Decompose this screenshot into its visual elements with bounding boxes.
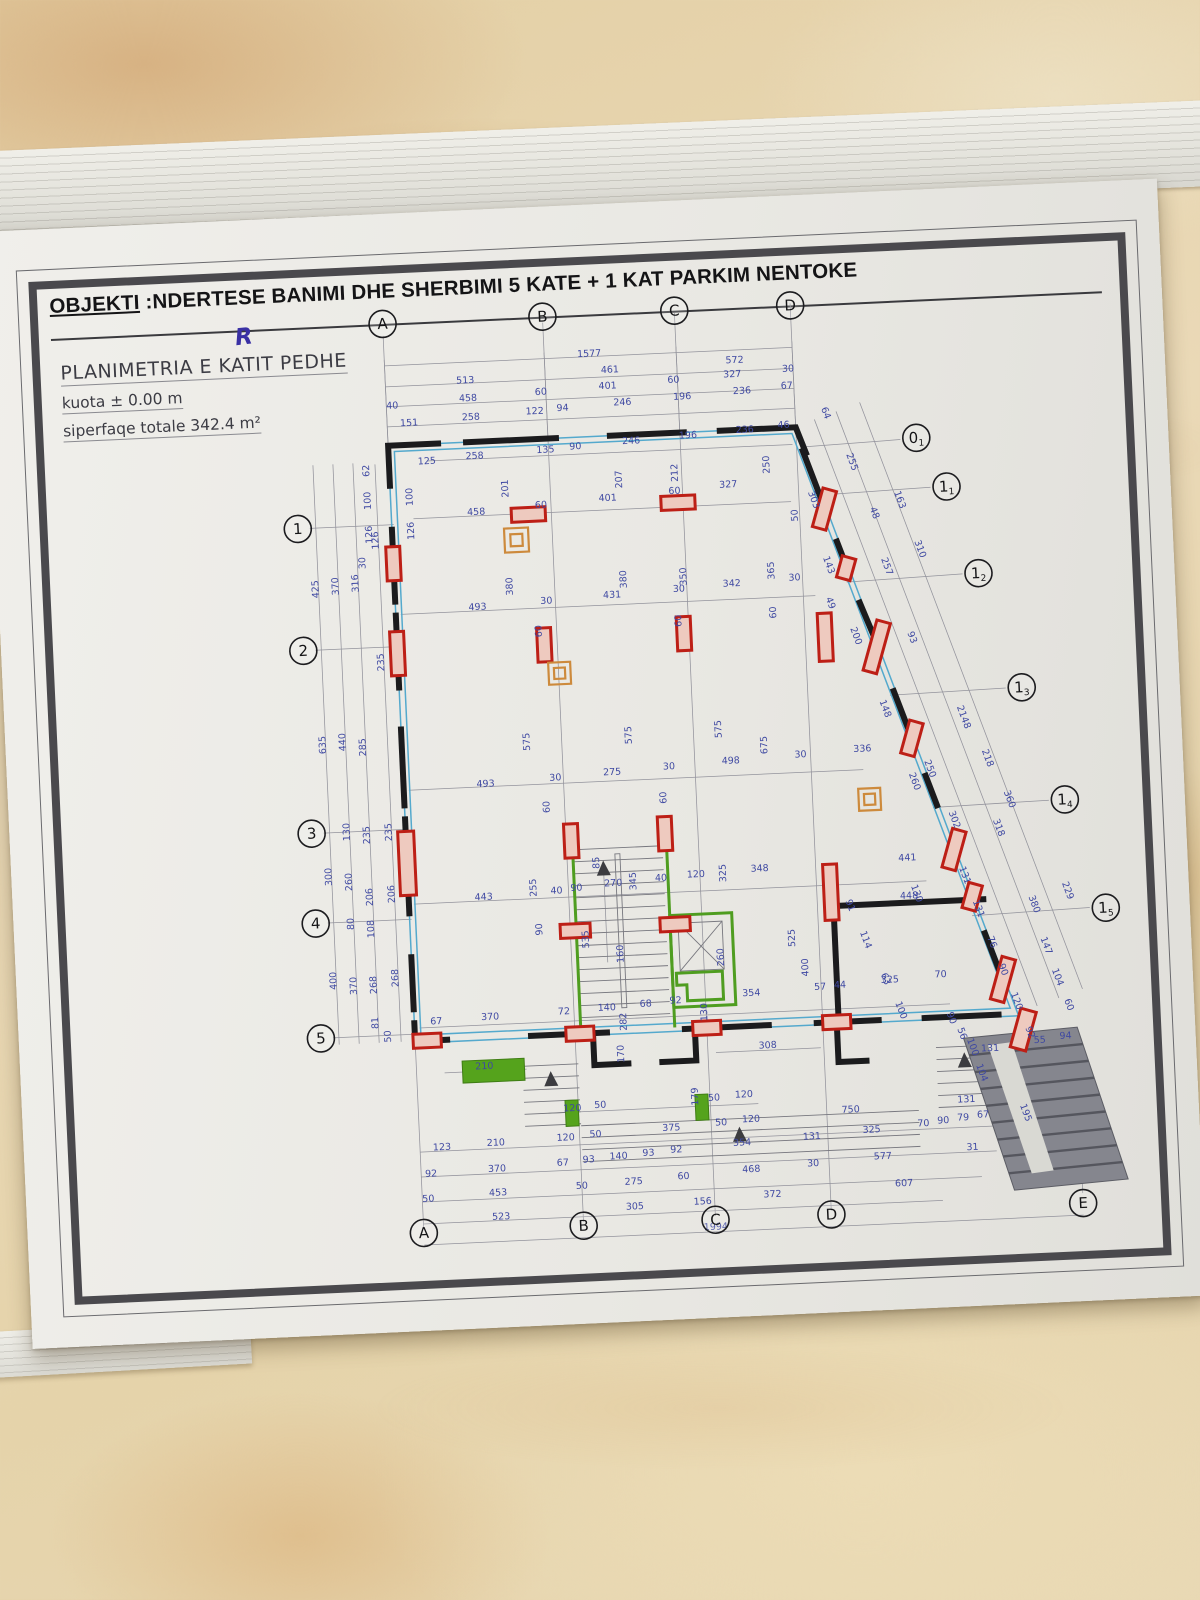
dim-label: 246 xyxy=(622,435,641,447)
dim-label: 458 xyxy=(459,393,478,405)
dim-label: 380 xyxy=(618,570,630,589)
axis-left-label: 1 xyxy=(293,520,303,538)
dim-label: 493 xyxy=(476,778,495,790)
dim-label: 30 xyxy=(549,772,562,784)
dim-label: 60 xyxy=(533,625,545,638)
dim-label: 318 xyxy=(990,817,1007,838)
dim-label: 60 xyxy=(541,801,553,814)
dim-label: 282 xyxy=(618,1012,630,1031)
dim-label: 305 xyxy=(626,1201,645,1213)
dim-label: 147 xyxy=(1038,935,1055,956)
dim-label: 31 xyxy=(966,1142,979,1154)
dim-label: 130 xyxy=(341,823,353,842)
dim-label: 468 xyxy=(742,1164,761,1176)
dim-label: 285 xyxy=(357,738,369,757)
dim-label: 218 xyxy=(979,748,996,769)
dim-label: 90 xyxy=(534,923,546,936)
dim-label: 300 xyxy=(323,868,335,887)
stair-tread xyxy=(576,918,666,922)
dim-label: 93 xyxy=(582,1154,595,1166)
dim-line xyxy=(310,525,394,529)
dim-label: 92 xyxy=(670,1144,683,1156)
dim-label: 607 xyxy=(895,1178,914,1190)
dim-label: 354 xyxy=(733,1137,752,1149)
dim-label: 443 xyxy=(474,892,493,904)
dim-label: 270 xyxy=(604,878,623,890)
dim-label: 212 xyxy=(669,463,681,482)
dim-label: 92 xyxy=(425,1168,438,1180)
dim-label: 30 xyxy=(782,363,795,375)
dim-label: 316 xyxy=(350,574,362,593)
dim-label: 93 xyxy=(904,630,919,645)
dim-label: 70 xyxy=(934,969,947,981)
dim-line xyxy=(933,800,1049,807)
axis-bottom-label: A xyxy=(418,1224,430,1242)
dim-label: 30 xyxy=(673,583,686,595)
dim-label: 260 xyxy=(906,771,923,792)
dim-label: 114 xyxy=(857,929,874,950)
column xyxy=(566,1026,595,1041)
dim-label: 135 xyxy=(536,444,555,456)
dim-label: 93 xyxy=(642,1147,655,1159)
dim-label: 120 xyxy=(687,869,706,881)
dim-label: 30 xyxy=(788,572,801,584)
dim-label: 400 xyxy=(800,958,812,977)
dim-label: 160 xyxy=(615,944,627,963)
dim-label: 30 xyxy=(663,761,676,773)
dim-line xyxy=(814,411,1037,1015)
stair-tread xyxy=(575,894,665,898)
column xyxy=(398,831,417,896)
dim-label: 453 xyxy=(489,1187,508,1199)
dim-label: 327 xyxy=(719,479,738,491)
dim-label: 30 xyxy=(807,1158,820,1170)
dim-label: 131 xyxy=(956,865,973,886)
axis-top-label: A xyxy=(377,315,389,333)
dim-label: 70 xyxy=(917,1118,930,1130)
axis-left-label: 3 xyxy=(306,824,316,842)
dim-label: 81 xyxy=(370,1017,382,1030)
dim-label: 258 xyxy=(462,412,481,424)
dim-label: 50 xyxy=(715,1117,728,1129)
dim-label: 100 xyxy=(362,491,374,510)
dim-label: 513 xyxy=(456,375,475,387)
stair-tread xyxy=(580,1002,670,1006)
dim-label: 40 xyxy=(550,885,563,897)
dim-label: 635 xyxy=(317,736,329,755)
dim-label: 255 xyxy=(528,878,540,897)
dim-label: 68 xyxy=(639,998,652,1010)
dim-label: 431 xyxy=(603,589,622,601)
dim-label: 94 xyxy=(1059,1030,1072,1042)
dim-label: 90 xyxy=(937,1115,950,1127)
stair-tread xyxy=(574,870,664,874)
shaft-marker-inner xyxy=(864,794,875,805)
wall-segment xyxy=(411,957,413,1009)
dim-label: 60 xyxy=(668,486,681,498)
dim-label: 575 xyxy=(623,726,635,745)
dim-label: 40 xyxy=(386,400,399,412)
axis-bottom-label: C xyxy=(710,1211,721,1229)
dim-label: 523 xyxy=(492,1211,511,1223)
dim-label: 50 xyxy=(708,1092,721,1104)
dim-label: 200 xyxy=(847,626,864,647)
column xyxy=(390,631,406,676)
dim-label: 535 xyxy=(580,930,592,949)
stair-tread xyxy=(579,990,669,994)
axis-top-label: D xyxy=(784,296,796,315)
dim-label: 206 xyxy=(364,888,376,907)
dim-label: 60 xyxy=(535,500,548,512)
title-object-word: OBJEKTI xyxy=(49,291,140,318)
dim-label: 380 xyxy=(504,577,516,596)
dim-label: 79 xyxy=(957,1112,970,1124)
dim-label: 151 xyxy=(400,417,419,429)
dim-label: 100 xyxy=(404,488,416,507)
dim-label: 170 xyxy=(616,1045,628,1064)
dim-label: 48 xyxy=(867,505,882,520)
dim-line xyxy=(333,464,359,1043)
dim-label: 572 xyxy=(725,355,744,367)
dim-label: 345 xyxy=(628,872,640,891)
dim-label: 525 xyxy=(786,929,798,948)
plan-elevation: kuota ± 0.00 m xyxy=(61,389,183,414)
dim-label: 64 xyxy=(818,406,833,421)
dim-label: 370 xyxy=(348,977,360,996)
dim-label: 196 xyxy=(679,430,698,442)
dim-label: 210 xyxy=(475,1061,494,1073)
dim-label: 30 xyxy=(794,749,807,761)
shaft-marker xyxy=(504,528,529,553)
dim-label: 90 xyxy=(570,882,583,894)
dim-label: 163 xyxy=(891,489,908,510)
dim-label: 360 xyxy=(1001,789,1018,810)
dim-label: 275 xyxy=(624,1176,643,1188)
dim-label: 401 xyxy=(598,492,617,504)
dim-label: 196 xyxy=(673,391,692,403)
axis-left-label: 5 xyxy=(316,1029,326,1047)
floor-plan-drawing: 1577513461572404586040160327301512581229… xyxy=(240,238,1165,1287)
dim-label: 120 xyxy=(742,1114,761,1126)
wall-segment xyxy=(720,427,806,457)
dim-label: 236 xyxy=(735,424,754,436)
dim-label: 60 xyxy=(1061,997,1076,1012)
dim-label: 67 xyxy=(430,1016,443,1028)
dim-label: 207 xyxy=(613,470,625,489)
dim-label: 44 xyxy=(834,980,847,992)
dim-label: 131 xyxy=(803,1131,822,1143)
dim-label: 131 xyxy=(957,1094,976,1106)
entry-step xyxy=(583,1146,921,1161)
stair-tread xyxy=(573,858,663,862)
column xyxy=(693,1020,722,1035)
axis-top-label: C xyxy=(669,301,680,319)
dim-label: 458 xyxy=(467,506,486,518)
dim-label: 425 xyxy=(310,580,322,599)
dim-label: 493 xyxy=(468,602,487,614)
shaft-marker xyxy=(548,662,571,685)
dim-line xyxy=(800,440,900,448)
dim-label: 72 xyxy=(558,1006,571,1018)
dim-label: 148 xyxy=(877,698,894,719)
dim-label: 275 xyxy=(603,767,622,779)
dim-label: 750 xyxy=(841,1104,860,1116)
dim-label: 120 xyxy=(556,1132,575,1144)
dim-label: 50 xyxy=(589,1129,602,1141)
dim-label: 1577 xyxy=(577,348,602,360)
column xyxy=(823,864,840,921)
dim-label: 268 xyxy=(368,976,380,995)
dim-label: 325 xyxy=(862,1124,881,1136)
entry-step xyxy=(523,1088,579,1091)
dim-label: 60 xyxy=(658,791,670,804)
dim-label: 210 xyxy=(487,1137,506,1149)
dim-label: 325 xyxy=(717,864,729,883)
dim-label: 60 xyxy=(667,375,680,387)
dim-label: 62 xyxy=(361,465,373,478)
dim-label: 575 xyxy=(713,720,725,739)
dim-label: 50 xyxy=(383,1030,395,1043)
dim-label: 258 xyxy=(465,450,484,462)
dim-label: 60 xyxy=(768,606,780,619)
dim-label: 49 xyxy=(823,596,838,611)
dim-label: 67 xyxy=(977,1109,990,1121)
dim-label: 131 xyxy=(981,1043,1000,1055)
stair-elevator-wall xyxy=(676,971,723,1001)
shaft-marker-inner xyxy=(554,668,565,679)
column xyxy=(942,828,966,870)
wall-segment xyxy=(466,438,556,442)
dim-label: 67 xyxy=(557,1157,570,1169)
dim-label: 122 xyxy=(525,406,544,418)
dim-label: 246 xyxy=(613,397,632,409)
dim-label: 440 xyxy=(337,733,349,752)
dim-label: 327 xyxy=(723,369,742,381)
dim-label: 50 xyxy=(789,509,801,522)
axis-left-label: 2 xyxy=(298,642,308,660)
dim-label: 60 xyxy=(673,614,685,627)
dim-label: 179 xyxy=(690,1087,702,1106)
dim-label: 365 xyxy=(766,561,778,580)
dim-label: 60 xyxy=(535,387,548,399)
wall-segment xyxy=(401,730,404,806)
dim-label: 50 xyxy=(422,1193,435,1205)
dim-label: 120 xyxy=(735,1089,754,1101)
dim-label: 372 xyxy=(763,1189,782,1201)
dim-label: 229 xyxy=(1059,880,1076,901)
shaft-marker-inner xyxy=(510,534,523,547)
dim-label: 46 xyxy=(777,420,790,432)
direction-arrow xyxy=(544,1071,559,1087)
dim-label: 370 xyxy=(481,1011,500,1023)
axis-top-label: B xyxy=(537,307,548,325)
dim-label: 354 xyxy=(742,987,761,999)
dim-line xyxy=(421,1151,996,1177)
photo-of-floor-plan: { "sheet": { "title_word": "OBJEKTI", "t… xyxy=(0,0,1200,1600)
dim-label: 260 xyxy=(343,873,355,892)
dim-label: 91 xyxy=(843,898,858,913)
dim-label: 120 xyxy=(563,1103,582,1115)
dim-label: 67 xyxy=(781,380,794,392)
dim-label: 201 xyxy=(500,479,512,498)
dim-label: 235 xyxy=(383,823,395,842)
dim-label: 126 xyxy=(406,522,418,541)
axis-left-label: 4 xyxy=(311,914,321,932)
dim-label: 336 xyxy=(853,743,872,755)
dim-label: 310 xyxy=(911,539,928,560)
dim-label: 130 xyxy=(699,1003,711,1022)
wall-segment xyxy=(925,1015,999,1018)
dim-label: 156 xyxy=(693,1196,712,1208)
dim-line xyxy=(847,574,963,582)
dim-label: 50 xyxy=(594,1100,607,1112)
dim-label: 250 xyxy=(761,455,773,474)
dim-label: 401 xyxy=(598,380,617,392)
wall-segment xyxy=(661,1031,696,1062)
dim-label: 57 xyxy=(814,981,827,993)
dim-label: 498 xyxy=(721,755,740,767)
column xyxy=(822,1014,851,1029)
dim-label: 92 xyxy=(669,995,682,1007)
dim-label: 104 xyxy=(1049,967,1066,988)
column xyxy=(657,816,673,851)
dim-label: 370 xyxy=(488,1163,507,1175)
dim-label: 577 xyxy=(874,1151,893,1163)
dim-label: 260 xyxy=(715,948,727,967)
dim-label: 302 xyxy=(946,809,963,830)
dim-label: 255 xyxy=(843,452,860,473)
dim-label: 575 xyxy=(521,732,533,751)
dim-line xyxy=(890,688,1006,695)
dim-label: 125 xyxy=(418,456,437,468)
dim-label: 348 xyxy=(750,863,769,875)
dim-label: 85 xyxy=(591,856,603,869)
dim-label: 30 xyxy=(357,557,369,570)
dim-label: 370 xyxy=(330,577,342,596)
stair-tread xyxy=(573,846,663,850)
column xyxy=(386,546,402,581)
dim-label: 236 xyxy=(733,385,752,397)
column xyxy=(661,495,696,511)
dim-label: 90 xyxy=(944,1010,959,1025)
stair-tread xyxy=(575,906,665,910)
dim-label: 675 xyxy=(759,736,771,755)
axis-bottom-label: D xyxy=(825,1205,837,1224)
dim-label: 140 xyxy=(598,1002,617,1014)
dim-line xyxy=(333,1034,417,1038)
dim-label: 143 xyxy=(820,555,837,576)
plan-total-area: siperfaqe totale 342.4 m² xyxy=(63,414,262,443)
dim-label: 375 xyxy=(662,1122,681,1134)
dim-label: 60 xyxy=(677,1171,690,1183)
stair-tread xyxy=(578,966,668,970)
dim-label: 461 xyxy=(601,364,620,376)
dim-label: 100 xyxy=(892,1000,909,1021)
dim-line xyxy=(387,408,795,427)
dim-label: 140 xyxy=(609,1151,628,1163)
dim-label: 50 xyxy=(576,1181,589,1193)
dim-label: 268 xyxy=(390,969,402,988)
dim-label: 235 xyxy=(361,826,373,845)
dim-label: 400 xyxy=(328,972,340,991)
dim-label: 108 xyxy=(366,920,378,939)
column xyxy=(660,917,691,932)
column xyxy=(413,1033,442,1048)
dim-label: 126 xyxy=(370,531,382,550)
dim-label: 441 xyxy=(898,852,917,864)
dim-label: 94 xyxy=(556,403,569,415)
stair-tread xyxy=(579,978,669,982)
entry-step xyxy=(522,1064,578,1067)
axis-bottom-label: E xyxy=(1078,1194,1088,1212)
axis-bottom-label: B xyxy=(578,1217,589,1235)
column xyxy=(817,613,833,662)
dim-label: 30 xyxy=(540,596,553,608)
dim-label: 206 xyxy=(386,885,398,904)
dim-label: 80 xyxy=(346,918,358,931)
drawing-sheet: OBJEKTI :NDERTESE BANIMI DHE SHERBIMI 5 … xyxy=(0,179,1200,1349)
dim-label: 342 xyxy=(722,578,741,590)
dim-line xyxy=(315,646,399,650)
column xyxy=(563,824,579,859)
dim-line xyxy=(420,1122,1089,1152)
dim-label: 123 xyxy=(433,1142,452,1154)
dim-label: 40 xyxy=(655,873,668,885)
dim-label: 308 xyxy=(758,1040,777,1052)
dim-label: 235 xyxy=(376,653,388,672)
dim-label: 90 xyxy=(569,441,582,453)
dim-label: 2148 xyxy=(954,704,973,731)
shaft-marker xyxy=(858,788,881,811)
